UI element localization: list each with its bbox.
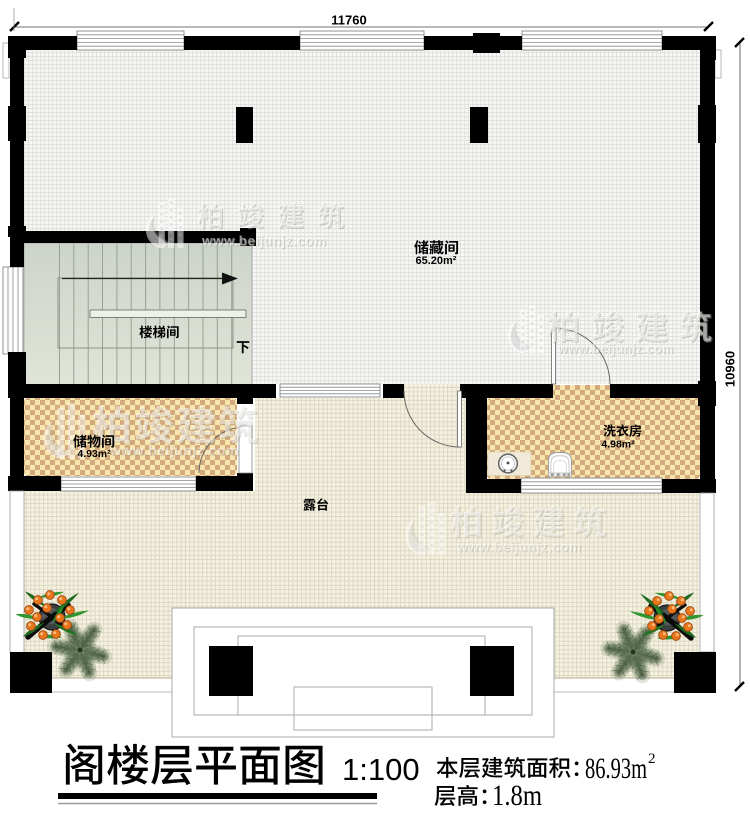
svg-text:www.beijunjz.com: www.beijunjz.com [557, 342, 674, 356]
svg-text:11760: 11760 [331, 13, 366, 28]
svg-text:86.93m: 86.93m [585, 752, 647, 785]
svg-text:4.98m²: 4.98m² [601, 439, 635, 451]
svg-text:www.beijunjz.com: www.beijunjz.com [109, 442, 239, 458]
svg-text:www.beijunjz.com: www.beijunjz.com [456, 540, 582, 555]
svg-text:4.93m²: 4.93m² [77, 448, 111, 460]
svg-text:65.20m²: 65.20m² [416, 255, 457, 267]
svg-text:2: 2 [648, 751, 656, 767]
svg-text:1:100: 1:100 [342, 752, 420, 787]
svg-text:1.8m: 1.8m [492, 779, 542, 811]
svg-text:10960: 10960 [723, 351, 738, 387]
svg-text:www.beijunjz.com: www.beijunjz.com [201, 234, 327, 249]
